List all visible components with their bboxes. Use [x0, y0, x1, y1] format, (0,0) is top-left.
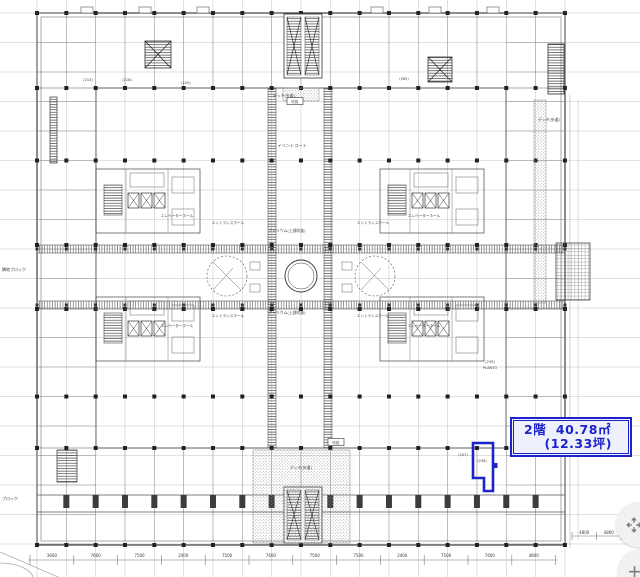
plan-label: エレベーターホール [161, 213, 194, 218]
svg-text:7500: 7500 [134, 553, 145, 558]
plan-label: エレベーターホール [161, 323, 194, 328]
svg-text:7600: 7600 [485, 553, 496, 558]
svg-text:3600: 3600 [47, 553, 58, 558]
plus-icon: + [628, 561, 640, 577]
annotation-floor-area: 2階 40.78㎡ [520, 423, 622, 437]
plan-label: 隣地ブロック [2, 266, 26, 272]
floorplan-drawing: 3600760075002400750076007500750024007500… [0, 0, 640, 577]
annotation-tsubo: (12.33坪) [520, 437, 622, 451]
expand-arrows-icon [626, 517, 640, 533]
plan-label: エントランスホール [212, 313, 245, 318]
area-annotation: 2階 40.78㎡ (12.33坪) [510, 417, 632, 457]
plan-label: アトリウム(上部吹抜) [268, 228, 306, 233]
floorplan-viewer: 3600760075002400750076007500750024007500… [0, 0, 640, 577]
plan-boxed-label: 吹抜 [333, 440, 341, 445]
svg-text:7600: 7600 [91, 553, 102, 558]
svg-text:7500: 7500 [310, 553, 321, 558]
svg-text:4800: 4800 [579, 530, 590, 535]
svg-text:7500: 7500 [353, 553, 364, 558]
plan-label: (265) [399, 77, 409, 81]
svg-text:4800: 4800 [529, 553, 540, 558]
plan-label: エレベーターホール [408, 323, 441, 328]
plan-label: (238) [477, 459, 487, 463]
plan-label: (213) [83, 78, 93, 82]
plan-label: ブロック [2, 495, 18, 501]
plan-label: エントランスホール [357, 313, 390, 318]
svg-text:7600: 7600 [266, 553, 277, 558]
area-annotation-inner: 2階 40.78㎡ (12.33坪) [513, 420, 629, 454]
plan-label: PLANTO [483, 366, 497, 370]
svg-text:4800: 4800 [604, 530, 615, 535]
plan-label: (237) [458, 453, 468, 457]
plan-label: エレベーターホール [408, 213, 441, 218]
svg-text:7500: 7500 [441, 553, 452, 558]
plan-label: デッキ(歩道) [538, 117, 560, 122]
plan-label: (220) [181, 81, 191, 85]
svg-text:2400: 2400 [397, 553, 408, 558]
plan-label: (218) [122, 78, 132, 82]
plan-label: イベントコート [277, 143, 306, 148]
svg-text:7500: 7500 [222, 553, 233, 558]
plan-boxed-label: 吹抜 [292, 99, 300, 104]
plan-label: デッキ(歩道) [290, 465, 312, 470]
plan-label: エントランスホール [357, 220, 390, 225]
highlighted-unit-outline [473, 443, 498, 491]
plan-label: アトリウム(上部吹抜) [268, 310, 306, 315]
plan-label: エントランスホール [212, 220, 245, 225]
svg-text:2400: 2400 [178, 553, 189, 558]
plan-label: (239) [485, 360, 495, 364]
